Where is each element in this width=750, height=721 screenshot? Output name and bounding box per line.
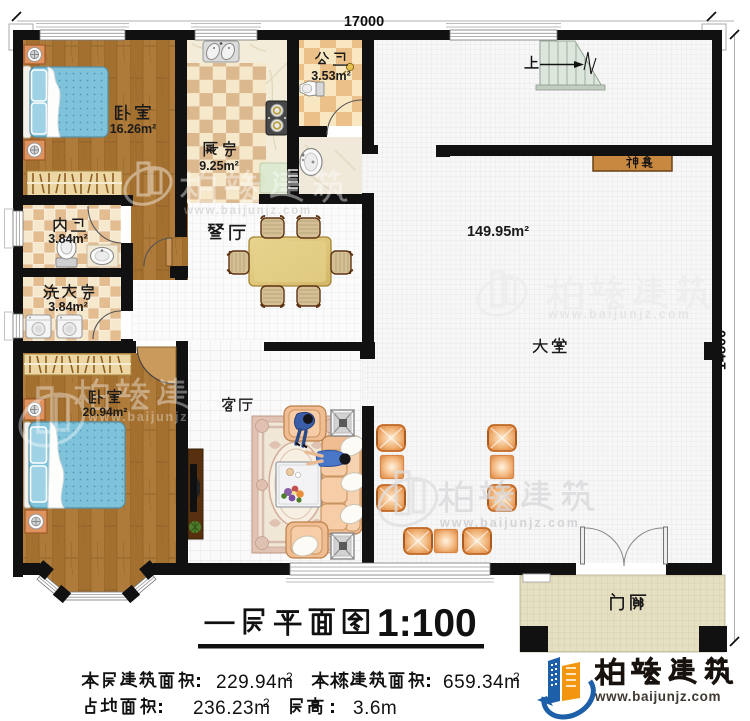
svg-text:www.baijunjz.com: www.baijunjz.com — [183, 205, 312, 217]
svg-text:www.baijunjz.com: www.baijunjz.com — [547, 307, 691, 321]
svg-text:www.baijunjz.com: www.baijunjz.com — [439, 516, 580, 530]
svg-text:2: 2 — [286, 670, 293, 684]
svg-text:3.84m²: 3.84m² — [48, 300, 88, 314]
svg-text:3.6m: 3.6m — [353, 698, 397, 719]
svg-text:www.baijunjz.com: www.baijunjz.com — [594, 689, 721, 704]
svg-text:9.25m²: 9.25m² — [199, 159, 239, 173]
svg-text:1:100: 1:100 — [377, 602, 477, 645]
svg-text:3.53m²: 3.53m² — [311, 69, 351, 83]
svg-text:236.23m: 236.23m — [193, 698, 270, 719]
svg-text:20.94m²: 20.94m² — [83, 405, 128, 419]
svg-text:229.94m: 229.94m — [216, 672, 293, 693]
svg-text:16.26m²: 16.26m² — [110, 122, 157, 136]
svg-text:3.84m²: 3.84m² — [48, 232, 88, 246]
svg-text:17000: 17000 — [344, 14, 384, 30]
svg-text:14800: 14800 — [714, 330, 730, 370]
svg-text:659.34m: 659.34m — [443, 672, 520, 693]
svg-text:149.95m²: 149.95m² — [467, 224, 529, 240]
svg-text:2: 2 — [513, 670, 520, 684]
svg-text:2: 2 — [263, 696, 270, 710]
